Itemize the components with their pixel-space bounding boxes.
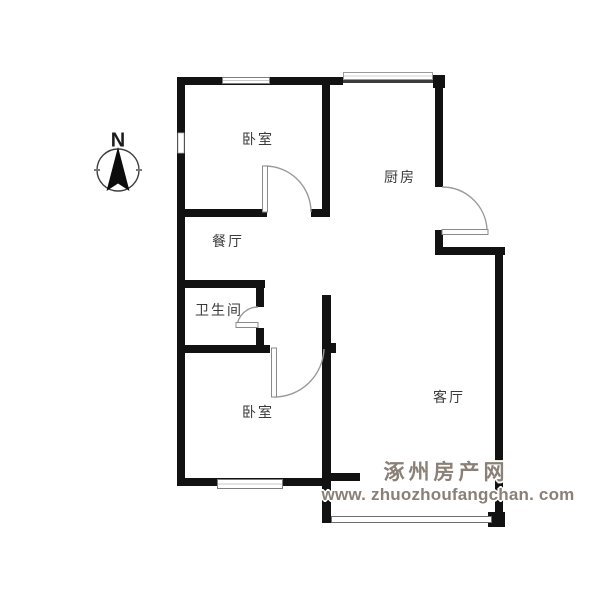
wall-bathroom-right-lower bbox=[256, 328, 264, 353]
room-label-dining-room: 餐厅 bbox=[212, 231, 244, 251]
window-kitchen bbox=[344, 73, 433, 80]
door-kitchen bbox=[442, 187, 488, 235]
wall-bedroom-north-right bbox=[322, 77, 330, 217]
door-bedroom-north bbox=[263, 166, 312, 212]
floor-plan: 卧室 厨房 餐厅 卫生间 卧室 客厅 N 涿州房产网 www. zhuozhou… bbox=[0, 0, 600, 600]
window-bedroom-south bbox=[218, 480, 283, 489]
room-label-kitchen: 厨房 bbox=[384, 167, 416, 187]
wall-under-kitchen-window bbox=[343, 80, 433, 83]
compass-needle-icon bbox=[107, 147, 130, 191]
floor-plan-drawing bbox=[0, 0, 600, 600]
door-bedroom-south bbox=[272, 348, 325, 397]
north-compass bbox=[94, 147, 142, 191]
door-leaf bbox=[263, 166, 268, 212]
door-leaf bbox=[236, 323, 258, 328]
wall-bathroom-top bbox=[177, 280, 265, 288]
door-arc bbox=[274, 349, 324, 397]
room-label-bedroom-north: 卧室 bbox=[242, 129, 274, 149]
watermark-site-url: www. zhuozhoufangchan. com bbox=[322, 485, 575, 505]
door-arc bbox=[442, 187, 487, 229]
wall-kitchen-right bbox=[435, 77, 443, 187]
doors bbox=[236, 166, 488, 397]
wall-bedroom-north-bottom-left bbox=[177, 209, 267, 217]
wall-kitchen-bottom-step bbox=[435, 247, 505, 255]
window-living-bay bbox=[332, 517, 492, 523]
window-bedroom-north bbox=[223, 78, 270, 84]
watermark-site-name: 涿州房产网 bbox=[384, 456, 509, 486]
door-arc bbox=[265, 166, 311, 212]
window-left-wall-notch bbox=[178, 133, 184, 153]
compass-north-letter: N bbox=[111, 130, 125, 153]
windows bbox=[178, 73, 492, 523]
wall-bedroom-north-bottom-right bbox=[311, 209, 330, 217]
room-label-living-room: 客厅 bbox=[433, 387, 465, 407]
room-label-bedroom-south: 卧室 bbox=[242, 402, 274, 422]
door-leaf bbox=[442, 230, 488, 235]
wall-bathroom-right-upper bbox=[256, 280, 264, 307]
door-leaf bbox=[272, 348, 277, 397]
room-label-bathroom: 卫生间 bbox=[195, 300, 243, 320]
wall-living-bottom-stub bbox=[331, 473, 360, 481]
